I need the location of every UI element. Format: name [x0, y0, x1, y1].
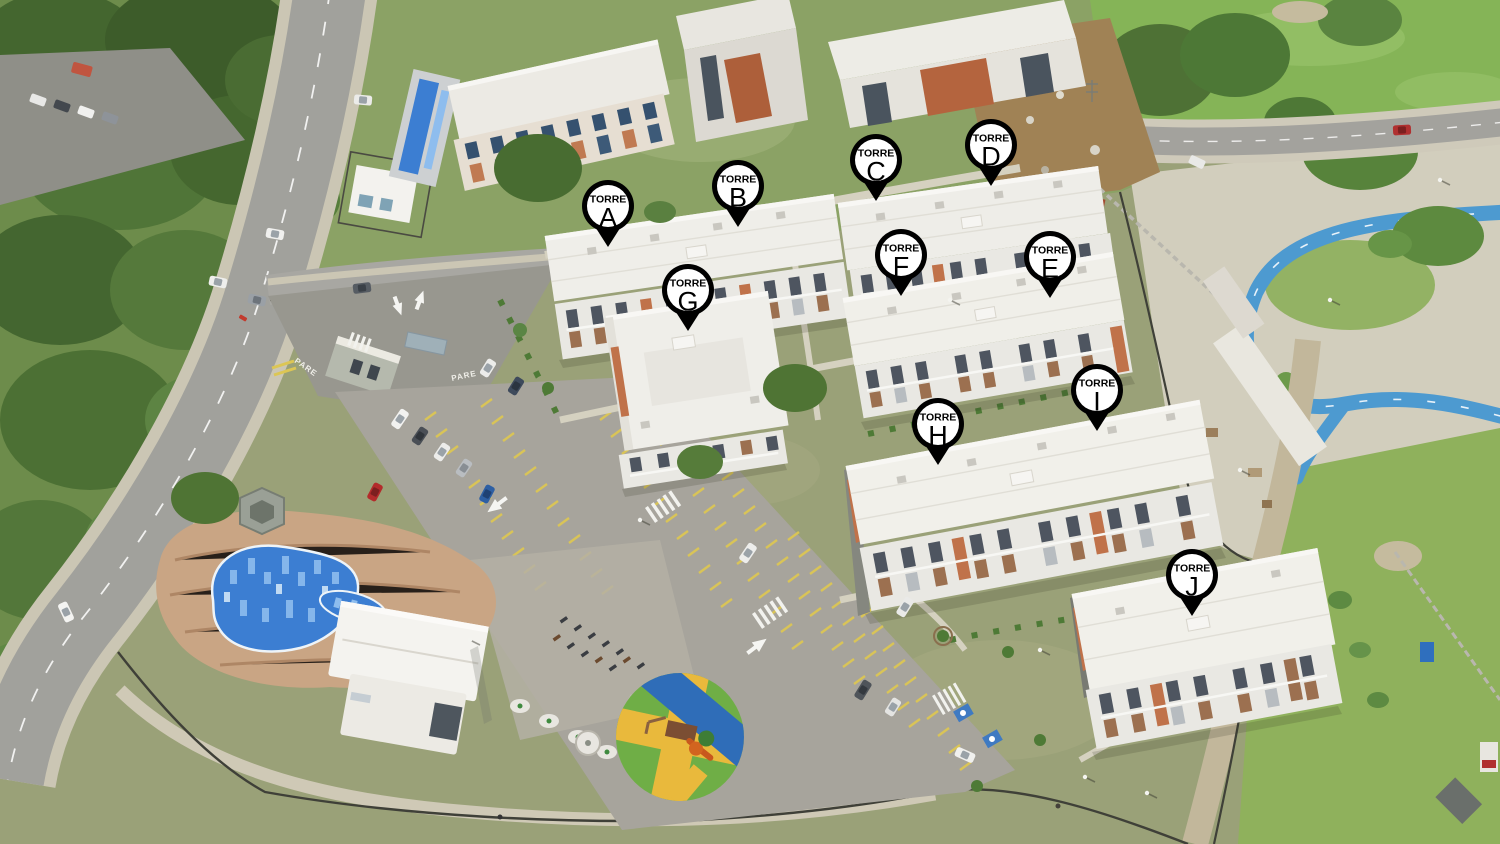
pin-letter-label: E — [1041, 254, 1059, 284]
torre-pin-d[interactable]: TORRE D — [962, 118, 1020, 194]
map-pin-icon: TORRE D — [962, 118, 1020, 194]
tower-markers-layer: TORRE A TORRE B TORRE C TORRE D — [0, 0, 1500, 844]
torre-pin-h[interactable]: TORRE H — [909, 397, 967, 473]
map-pin-icon: TORRE J — [1163, 548, 1221, 624]
map-pin-icon: TORRE E — [1021, 230, 1079, 306]
torre-pin-a[interactable]: TORRE A — [579, 179, 637, 255]
map-pin-icon: TORRE A — [579, 179, 637, 255]
torre-pin-e[interactable]: TORRE E — [1021, 230, 1079, 306]
pin-letter-label: J — [1185, 572, 1199, 602]
map-pin-icon: TORRE B — [709, 159, 767, 235]
torre-pin-c[interactable]: TORRE C — [847, 133, 905, 209]
torre-pin-f[interactable]: TORRE F — [872, 228, 930, 304]
torre-pin-j[interactable]: TORRE J — [1163, 548, 1221, 624]
pin-letter-label: A — [599, 203, 617, 233]
torre-pin-b[interactable]: TORRE B — [709, 159, 767, 235]
pin-letter-label: G — [677, 287, 698, 317]
pin-letter-label: C — [866, 157, 886, 187]
map-pin-icon: TORRE H — [909, 397, 967, 473]
map-pin-icon: TORRE F — [872, 228, 930, 304]
pin-letter-label: D — [981, 142, 1001, 172]
map-pin-icon: TORRE G — [659, 263, 717, 339]
torre-pin-i[interactable]: TORRE I — [1068, 363, 1126, 439]
map-pin-icon: TORRE I — [1068, 363, 1126, 439]
pin-letter-label: I — [1093, 387, 1101, 417]
pin-letter-label: H — [928, 421, 948, 451]
pin-letter-label: F — [893, 252, 910, 282]
pin-letter-label: B — [729, 183, 747, 213]
aerial-site-view: PARE PARE — [0, 0, 1500, 844]
torre-pin-g[interactable]: TORRE G — [659, 263, 717, 339]
map-pin-icon: TORRE C — [847, 133, 905, 209]
